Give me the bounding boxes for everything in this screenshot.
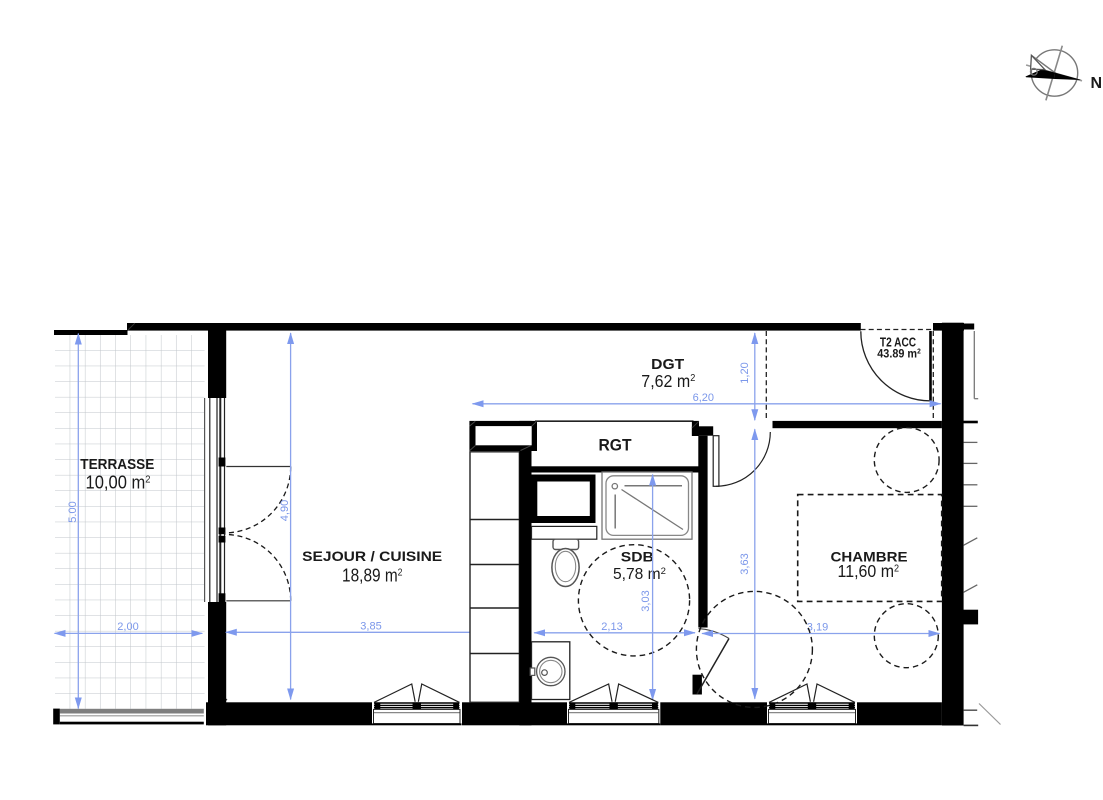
svg-text:N: N xyxy=(1091,75,1103,92)
svg-text:3,63: 3,63 xyxy=(739,553,751,574)
svg-text:10,00 m2: 10,00 m2 xyxy=(86,472,151,493)
svg-text:SEJOUR / CUISINE: SEJOUR / CUISINE xyxy=(302,548,442,564)
svg-text:3,85: 3,85 xyxy=(360,621,381,633)
svg-text:RGT: RGT xyxy=(599,435,632,454)
svg-text:2,13: 2,13 xyxy=(601,621,622,633)
svg-text:7,62 m2: 7,62 m2 xyxy=(641,371,695,391)
svg-text:6,20: 6,20 xyxy=(693,392,714,404)
svg-text:11,60 m2: 11,60 m2 xyxy=(838,561,900,581)
svg-text:TERRASSE: TERRASSE xyxy=(80,456,154,473)
svg-text:2,00: 2,00 xyxy=(117,621,138,633)
svg-text:1,20: 1,20 xyxy=(739,362,751,383)
svg-text:3,03: 3,03 xyxy=(640,590,652,611)
svg-text:SDB: SDB xyxy=(621,549,654,565)
svg-text:5.00: 5.00 xyxy=(67,501,79,522)
svg-text:4,90: 4,90 xyxy=(279,500,291,521)
svg-text:18,89 m2: 18,89 m2 xyxy=(342,565,403,586)
svg-text:43.89 m2: 43.89 m2 xyxy=(877,347,921,361)
svg-text:5,78 m2: 5,78 m2 xyxy=(613,566,666,583)
